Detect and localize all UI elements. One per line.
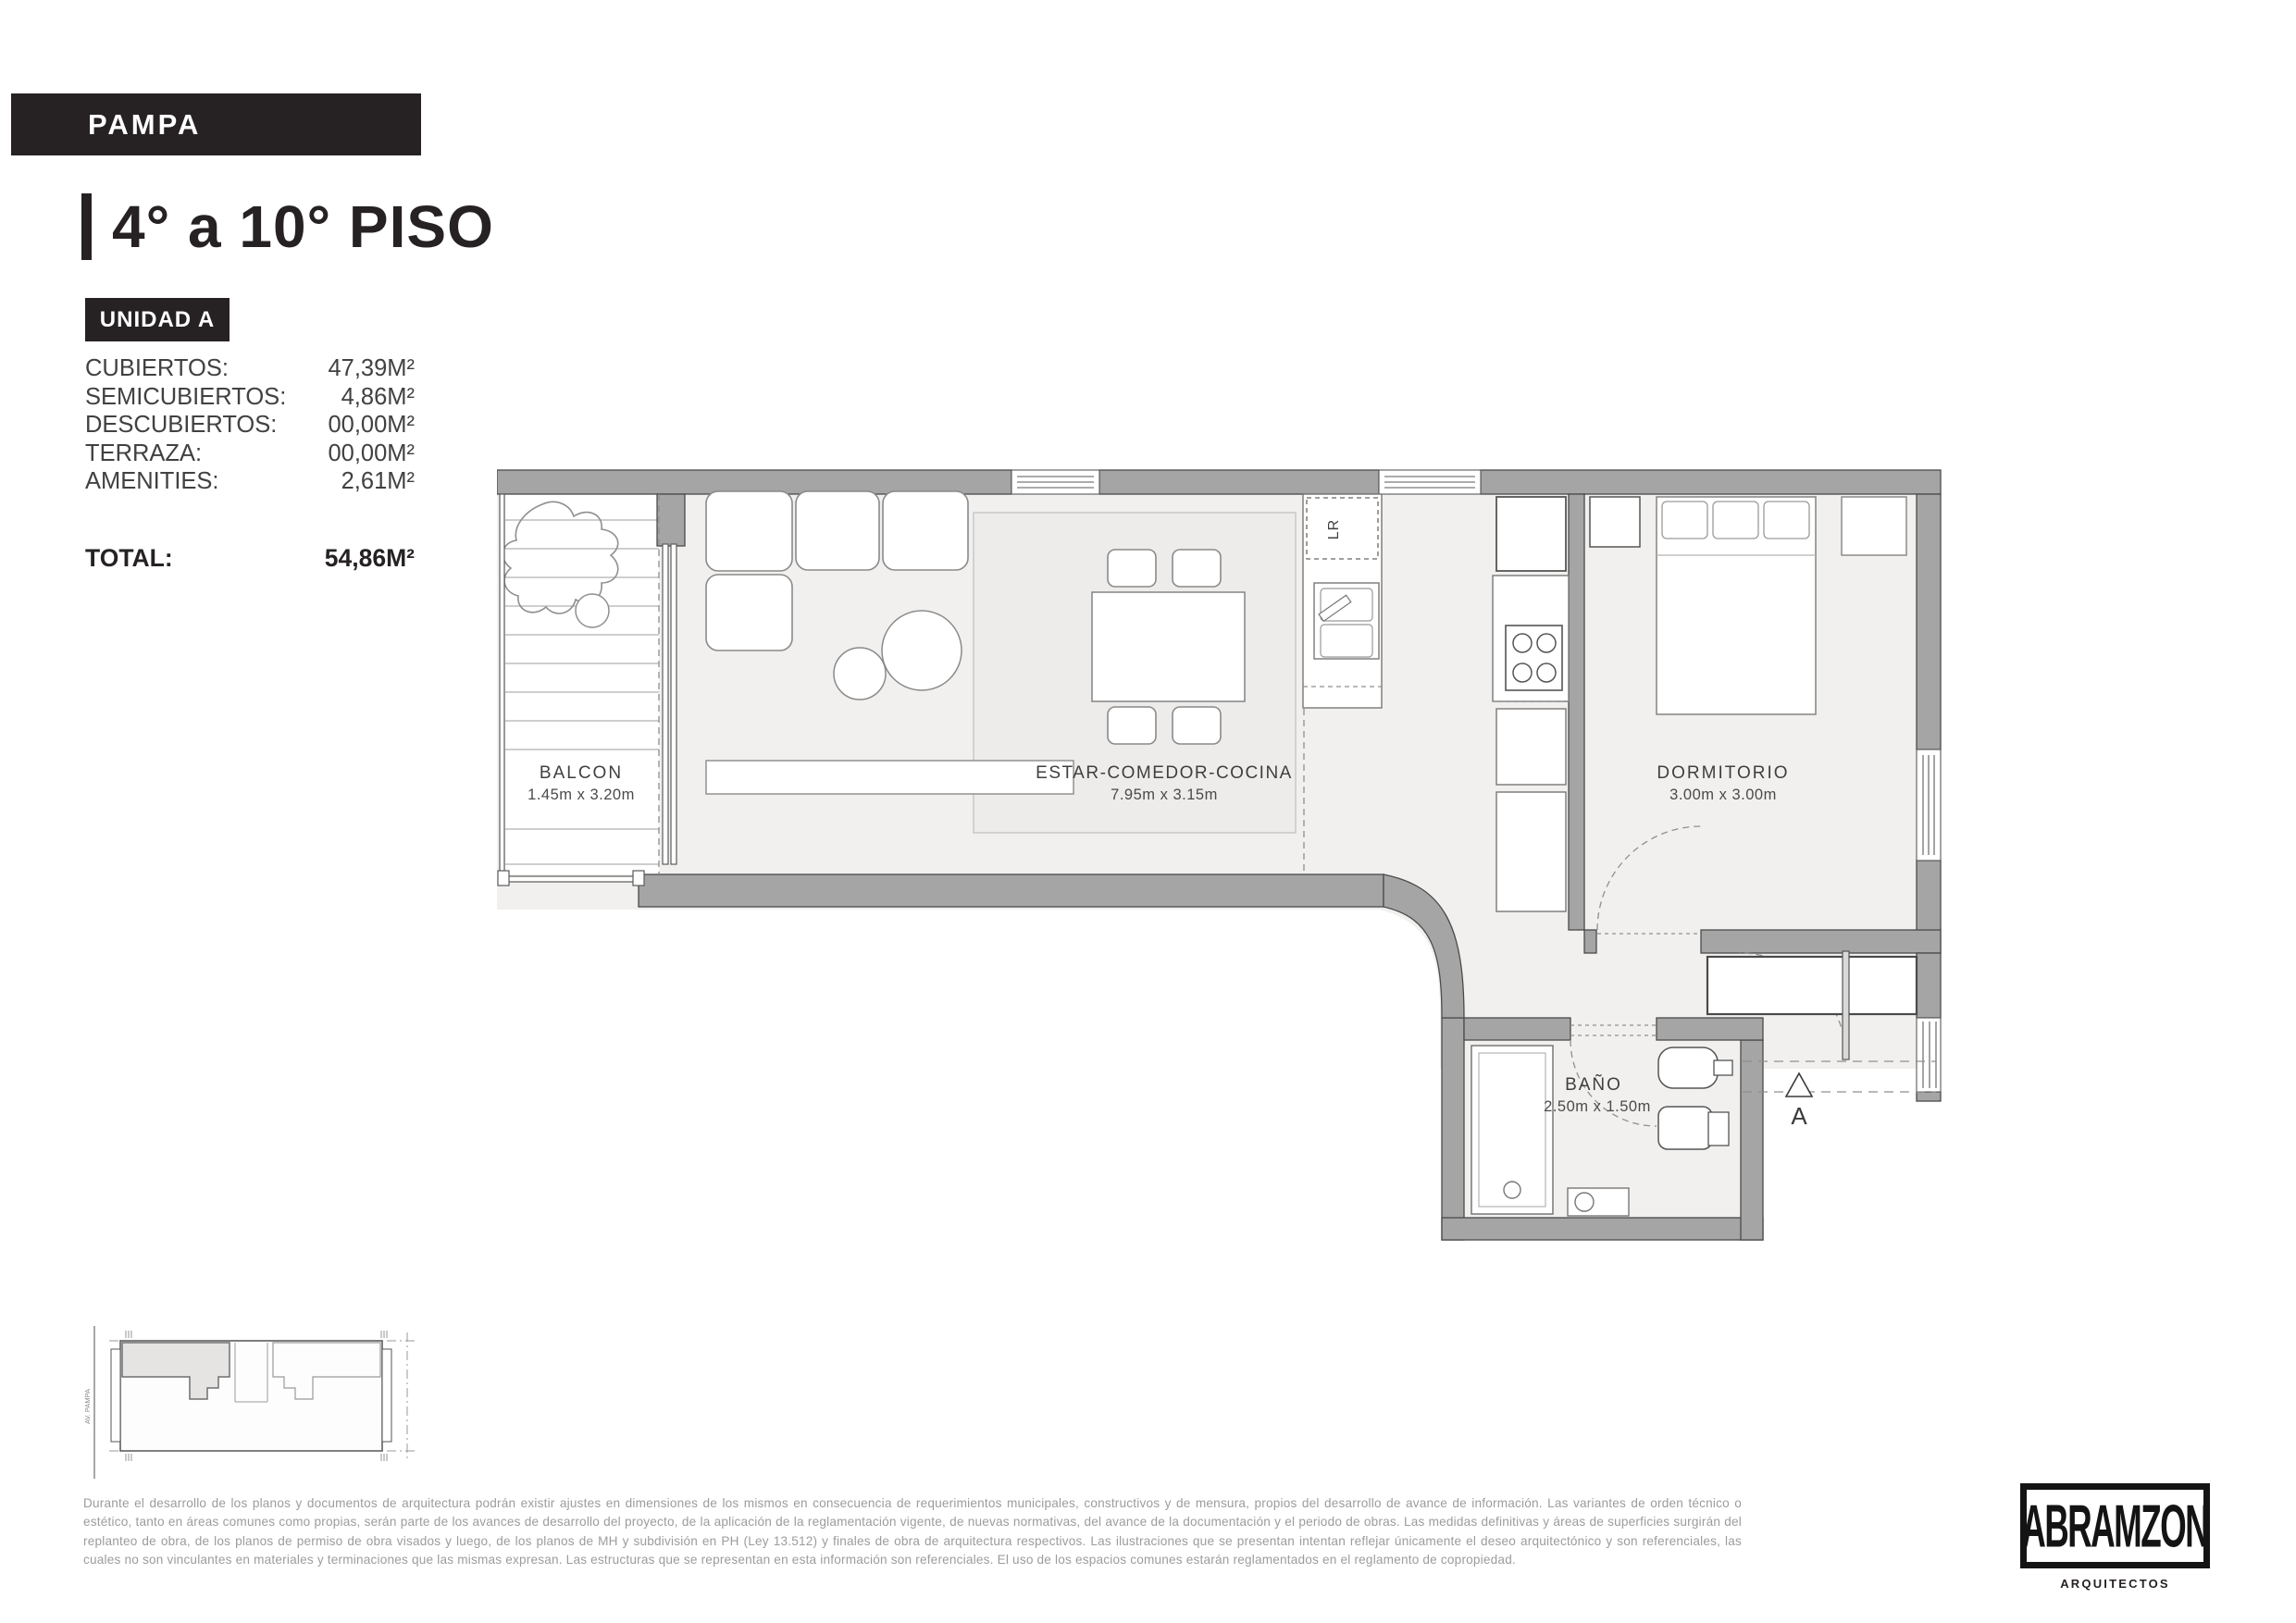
project-name: PAMPA	[88, 108, 201, 142]
coffee-table	[882, 611, 962, 690]
shower	[1471, 1046, 1553, 1214]
toilet	[1658, 1047, 1718, 1088]
street-label: AV. PAMPA	[83, 1389, 92, 1424]
section-marker-label: A	[1791, 1102, 1807, 1130]
laundry-label: LR	[1326, 519, 1342, 539]
title-tick-bar	[81, 193, 92, 260]
room-label-bano: BAÑO	[1565, 1074, 1622, 1095]
logo-name: ABRAMZON	[2022, 1491, 2209, 1562]
floor-plan-sheet: PAMPA 4° a 10° PISO UNIDAD A CUBIERTOS:4…	[0, 0, 2296, 1623]
area-total-row: TOTAL:54,86M²	[85, 544, 415, 573]
area-row: AMENITIES:2,61M²	[85, 467, 415, 496]
area-row: DESCUBIERTOS:00,00M²	[85, 411, 415, 440]
fridge	[1496, 497, 1566, 571]
room-label-estar: ESTAR-COMEDOR-COCINA	[1036, 763, 1293, 783]
bidet	[1658, 1107, 1712, 1149]
logo-box: ABRAMZON	[2020, 1483, 2210, 1568]
bathroom-sink	[1568, 1188, 1629, 1216]
room-dims-dormitorio: 3.00m x 3.00m	[1669, 787, 1777, 803]
project-name-bar: PAMPA	[11, 93, 421, 155]
floor-title-text: 4° a 10° PISO	[112, 192, 494, 261]
dresser	[1590, 497, 1640, 547]
entry-door-leaf	[1843, 951, 1849, 1059]
tv-console	[706, 761, 1074, 794]
architect-logo: ABRAMZON ARQUITECTOS	[2020, 1483, 2210, 1591]
section-marker-a-icon: A	[1786, 1073, 1812, 1130]
wardrobe	[1707, 957, 1917, 1014]
room-dims-estar: 7.95m x 3.15m	[1111, 787, 1218, 803]
area-row: CUBIERTOS:47,39M²	[85, 354, 415, 383]
kitchen-counter	[1303, 494, 1382, 708]
nightstand	[1842, 497, 1906, 555]
key-plan: AV. PAMPA	[81, 1321, 418, 1486]
floor-plan-drawing: BALCON 1.45m x 3.20m ESTAR-COMEDOR-COCIN…	[497, 463, 1959, 1249]
disclaimer-text: Durante el desarrollo de los planos y do…	[83, 1494, 1742, 1570]
room-label-balcon: BALCON	[540, 763, 623, 783]
side-table	[834, 648, 886, 700]
area-row: TERRAZA:00,00M²	[85, 440, 415, 468]
logo-subtitle: ARQUITECTOS	[2020, 1577, 2210, 1591]
unit-badge: UNIDAD A	[85, 298, 230, 341]
areas-table: CUBIERTOS:47,39M² SEMICUBIERTOS:4,86M² D…	[85, 354, 415, 573]
area-row: SEMICUBIERTOS:4,86M²	[85, 383, 415, 412]
room-label-dormitorio: DORMITORIO	[1657, 763, 1789, 783]
balcony-table	[576, 594, 609, 627]
floor-title: 4° a 10° PISO	[81, 192, 494, 261]
room-dims-balcon: 1.45m x 3.20m	[527, 787, 635, 803]
room-dims-bano: 2.50m x 1.50m	[1544, 1098, 1651, 1115]
stove	[1506, 626, 1562, 690]
